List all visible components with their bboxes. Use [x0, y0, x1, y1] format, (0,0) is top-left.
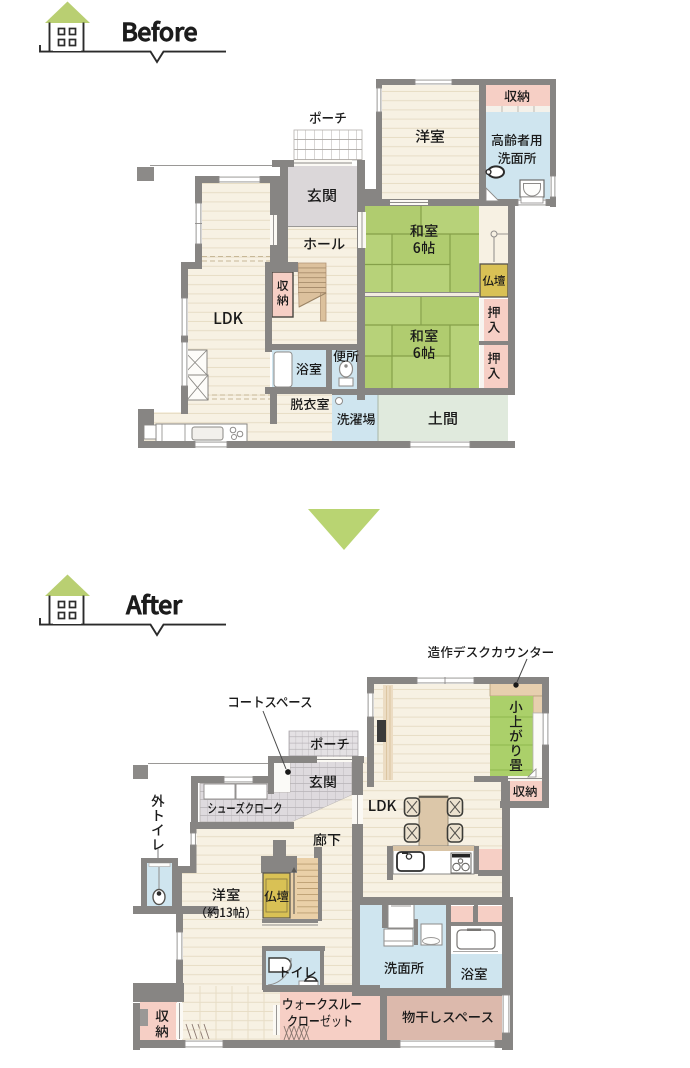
svg-text:高齢者用: 高齢者用: [491, 130, 543, 149]
svg-text:土間: 土間: [428, 408, 458, 429]
svg-text:シューズクローク: シューズクローク: [208, 798, 283, 817]
svg-text:収納: 収納: [512, 781, 537, 800]
svg-text:6帖: 6帖: [413, 343, 435, 363]
svg-text:畳: 畳: [509, 754, 523, 774]
svg-text:洋室: 洋室: [212, 885, 240, 905]
svg-text:LDK: LDK: [213, 307, 243, 329]
svg-text:Before: Before: [121, 13, 199, 49]
svg-text:レ: レ: [151, 834, 165, 854]
svg-text:洗濯場: 洗濯場: [336, 409, 375, 428]
svg-text:トイレ: トイレ: [278, 962, 317, 981]
svg-text:洗面所: 洗面所: [384, 957, 425, 977]
svg-text:After: After: [124, 586, 183, 622]
svg-text:収納: 収納: [504, 86, 530, 105]
svg-text:ホール: ホール: [303, 234, 345, 254]
svg-text:便所: 便所: [333, 346, 359, 365]
svg-text:玄関: 玄関: [307, 185, 337, 206]
svg-text:コートスペース: コートスペース: [228, 691, 313, 711]
svg-text:造作デスクカウンター: 造作デスクカウンター: [428, 642, 555, 661]
svg-text:浴室: 浴室: [296, 359, 322, 378]
svg-text:LDK: LDK: [368, 795, 397, 816]
svg-text:仏壇: 仏壇: [263, 886, 290, 905]
svg-text:仏壇: 仏壇: [483, 273, 506, 289]
svg-text:玄関: 玄関: [309, 772, 337, 792]
svg-text:廊下: 廊下: [313, 830, 341, 850]
svg-text:6帖: 6帖: [413, 238, 435, 258]
svg-text:（約13帖）: （約13帖）: [195, 904, 257, 921]
svg-text:クローゼット: クローゼット: [287, 1010, 353, 1030]
svg-text:洗面所: 洗面所: [497, 148, 536, 167]
svg-text:洋室: 洋室: [415, 126, 445, 147]
svg-text:脱衣室: 脱衣室: [289, 394, 329, 413]
svg-text:ポーチ: ポーチ: [309, 107, 347, 127]
svg-text:物干しスペース: 物干しスペース: [402, 1006, 494, 1026]
svg-text:入: 入: [487, 363, 500, 382]
svg-text:納: 納: [275, 292, 288, 309]
svg-text:ポーチ: ポーチ: [310, 733, 350, 753]
svg-text:納: 納: [155, 1021, 169, 1041]
svg-text:入: 入: [487, 317, 500, 336]
svg-text:浴室: 浴室: [461, 963, 488, 983]
